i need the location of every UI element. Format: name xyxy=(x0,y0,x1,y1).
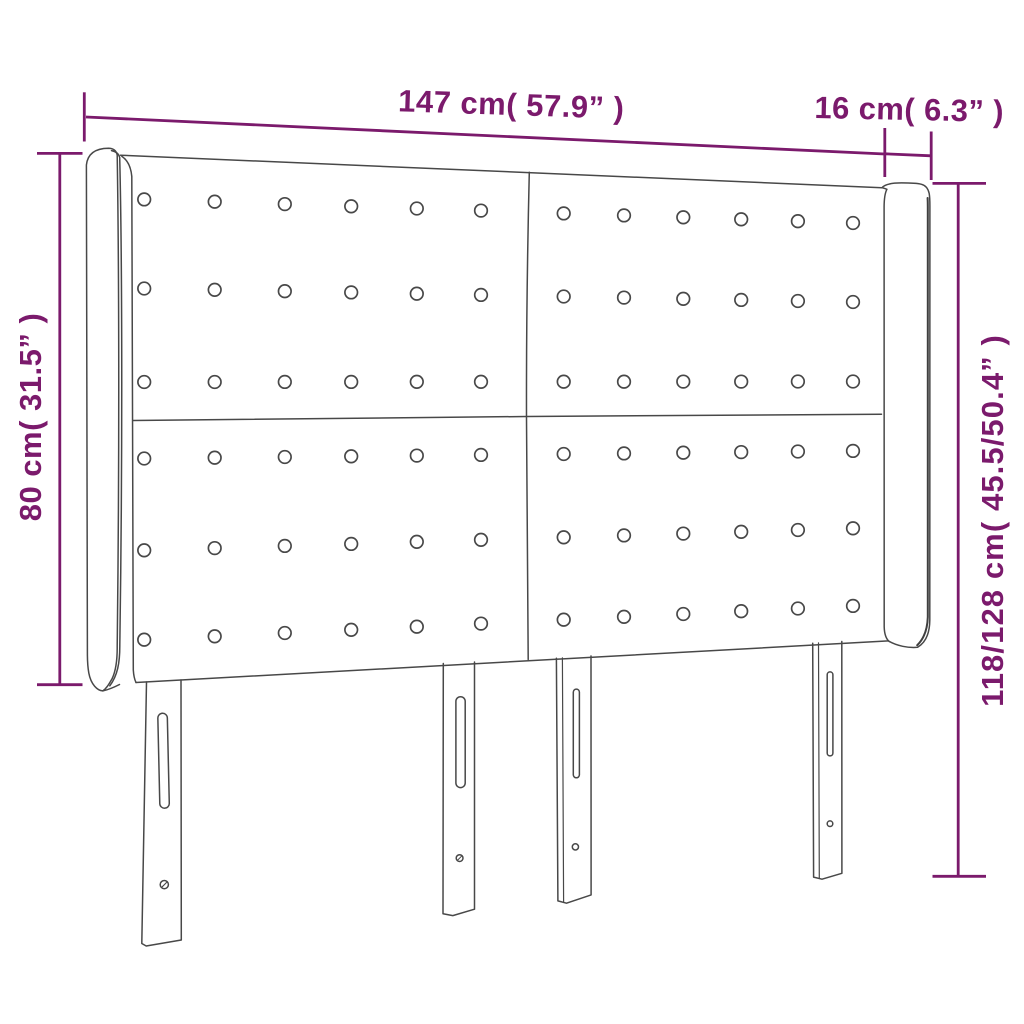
svg-text:16 cm( 6.3” ): 16 cm( 6.3” ) xyxy=(814,90,1004,129)
svg-text:80 cm( 31.5” ): 80 cm( 31.5” ) xyxy=(13,313,48,522)
svg-text:118/128 cm( 45.5/50.4” ): 118/128 cm( 45.5/50.4” ) xyxy=(975,334,1010,707)
